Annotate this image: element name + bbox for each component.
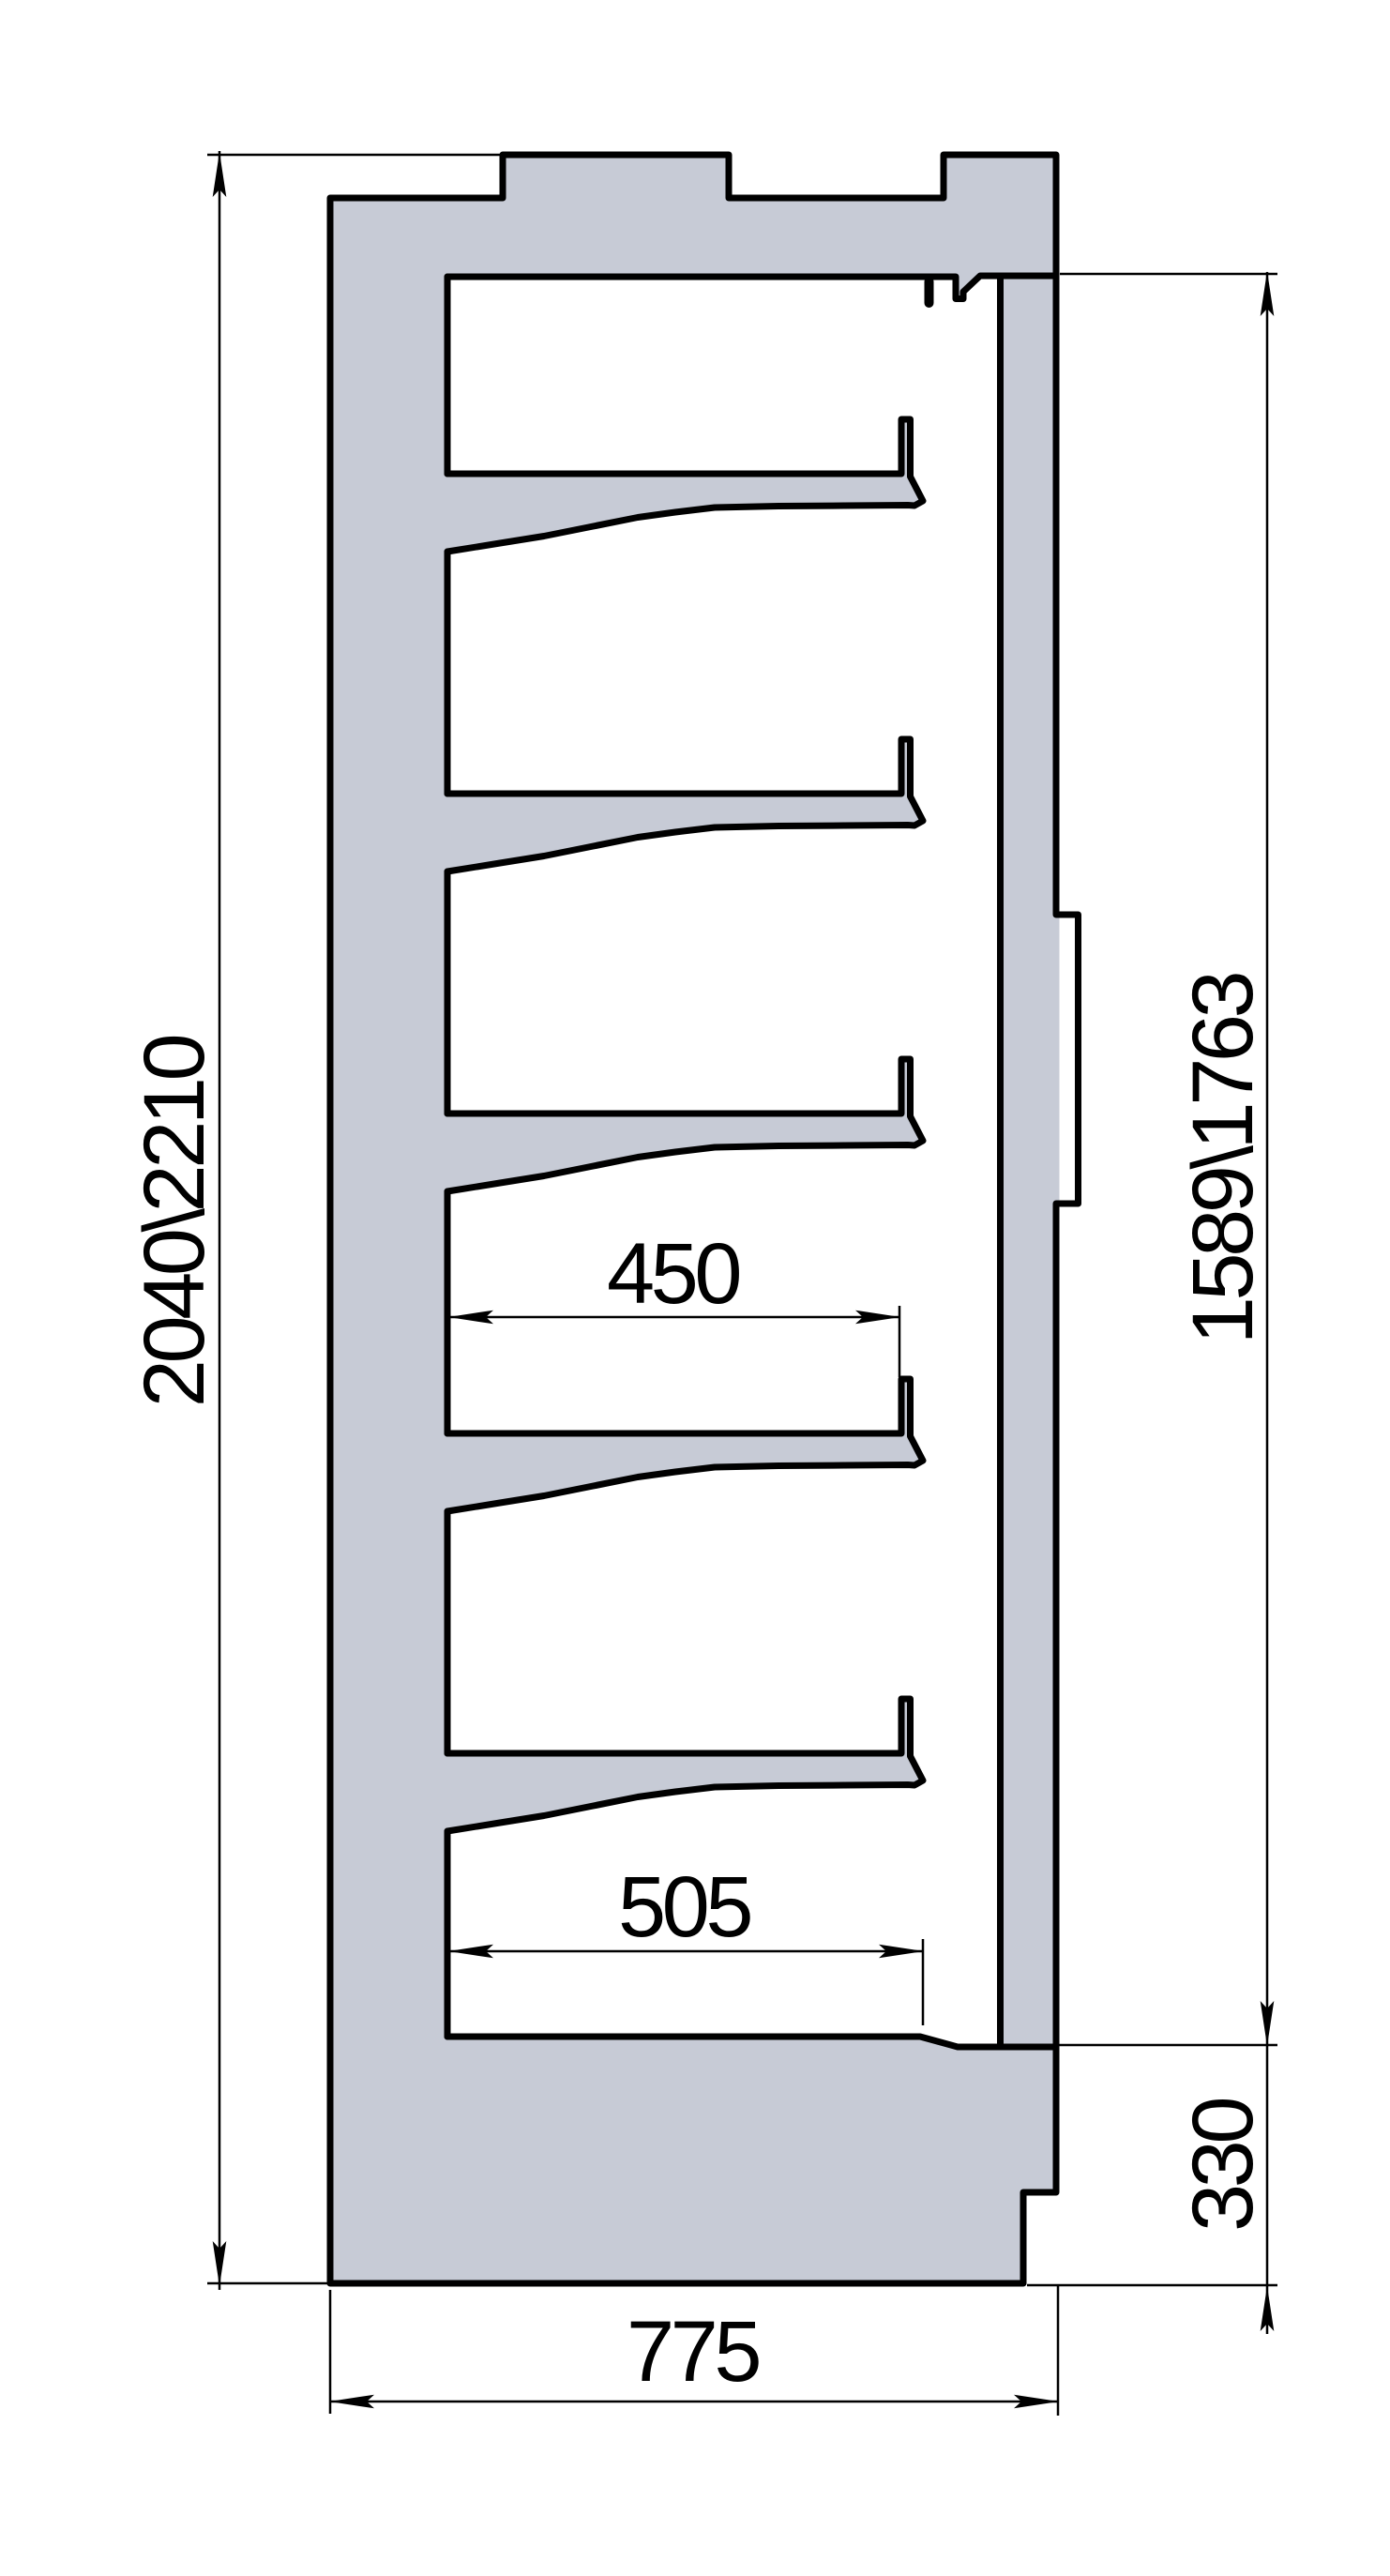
svg-text:505: 505 (618, 1859, 750, 1955)
svg-text:2040\2210: 2040\2210 (127, 1036, 222, 1407)
svg-text:775: 775 (627, 2304, 759, 2400)
svg-text:1589\1763: 1589\1763 (1175, 973, 1271, 1344)
svg-text:330: 330 (1175, 2099, 1271, 2232)
svg-text:450: 450 (607, 1226, 739, 1322)
